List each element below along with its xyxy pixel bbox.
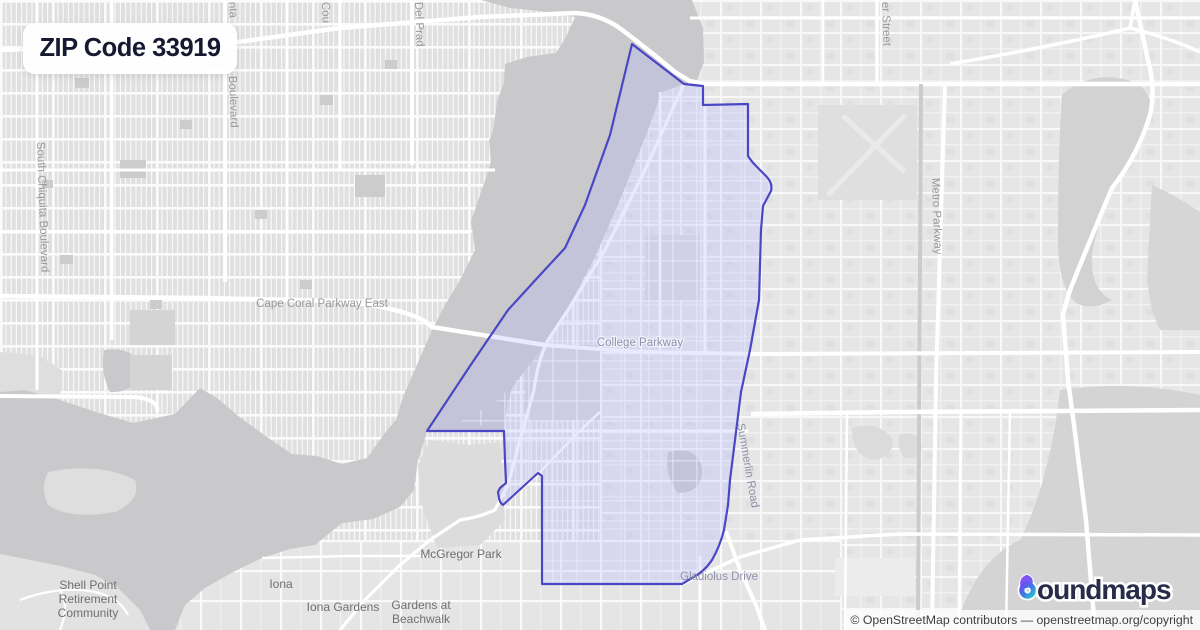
svg-text:Del Prad: Del Prad: [412, 2, 426, 47]
svg-text:McGregor Park: McGregor Park: [420, 547, 502, 561]
svg-text:Gardens at: Gardens at: [391, 598, 451, 612]
svg-text:oundmaps: oundmaps: [1037, 574, 1171, 605]
svg-text:Iona: Iona: [269, 577, 293, 591]
svg-text:College Parkway: College Parkway: [597, 337, 684, 349]
svg-text:Iona Gardens: Iona Gardens: [307, 600, 380, 614]
svg-text:Cape Coral Parkway East: Cape Coral Parkway East: [256, 298, 388, 310]
svg-text:er Street: er Street: [879, 2, 893, 47]
svg-text:Community: Community: [58, 606, 119, 620]
svg-text:Boulevard: Boulevard: [226, 76, 240, 128]
svg-text:Retirement: Retirement: [59, 592, 118, 606]
svg-text:nta: nta: [226, 2, 239, 19]
svg-text:Shell Point: Shell Point: [59, 578, 117, 592]
svg-text:Beachwalk: Beachwalk: [392, 612, 451, 626]
svg-text:Cou: Cou: [319, 2, 332, 24]
svg-text:Gladiolus Drive: Gladiolus Drive: [680, 571, 758, 583]
